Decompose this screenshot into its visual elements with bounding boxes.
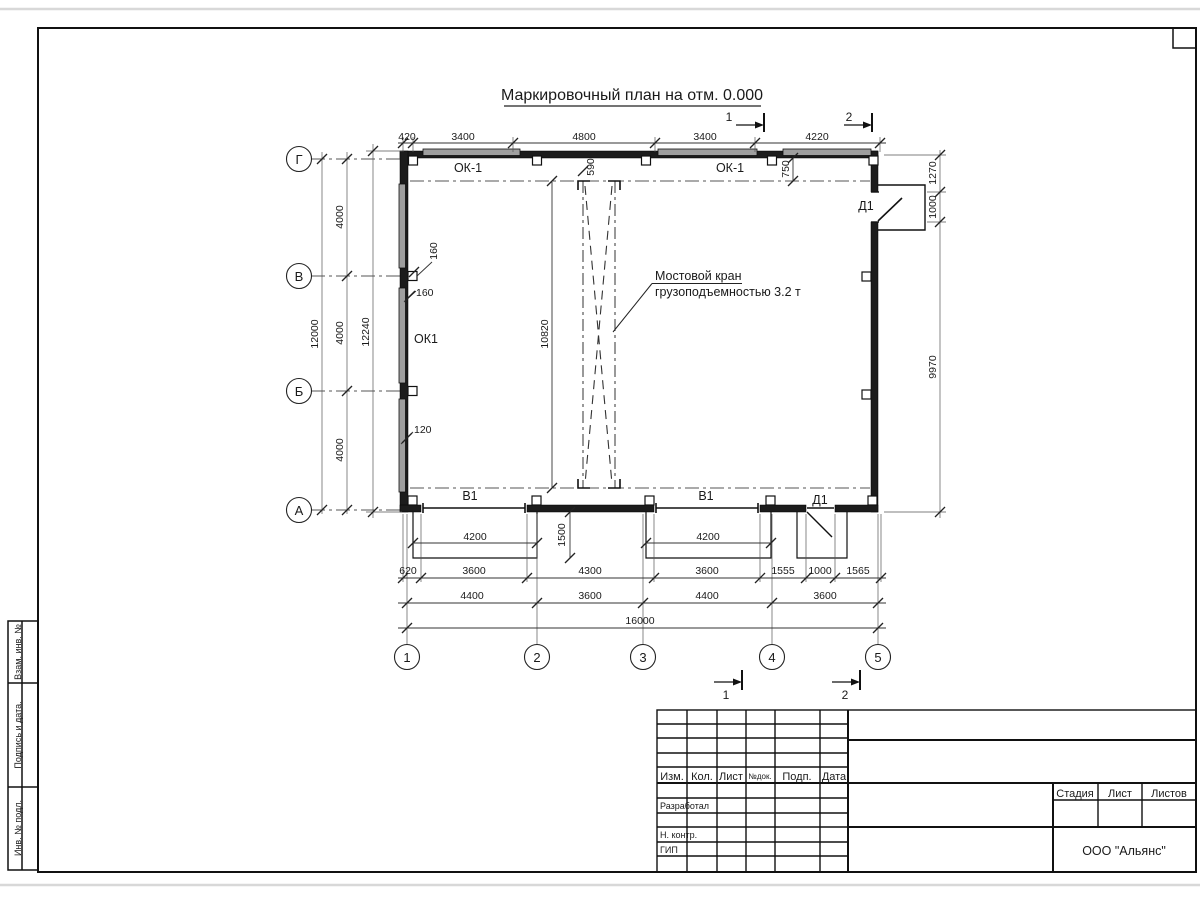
gate-left	[423, 503, 525, 513]
label-door-bottom: Д1	[812, 493, 827, 507]
dim-right-1270: 1270	[927, 161, 939, 185]
label-door-right: Д1	[858, 199, 873, 213]
dim-b2-4400a: 4400	[460, 590, 484, 602]
axis-label-4: 4	[768, 650, 775, 665]
dim-b1-620: 620	[399, 565, 417, 577]
openings	[413, 185, 925, 558]
dim-crane-590: 590	[585, 158, 597, 176]
side-strip-label-vzam: Взам. инв. №	[13, 624, 23, 680]
dim-left-4000a: 4000	[334, 205, 346, 229]
side-strip-label-podpis: Подпись и дата.	[13, 701, 23, 768]
tb-col-ndok: №док.	[748, 772, 771, 781]
axis-label-v: В	[295, 269, 304, 284]
dim-top-3400b: 3400	[693, 131, 717, 143]
axis-label-2: 2	[533, 650, 540, 665]
window-strips	[399, 149, 871, 492]
axis-marker-texts: Г В Б А 1 2 3 4 5	[295, 152, 882, 665]
dim-b1-1555: 1555	[771, 565, 795, 577]
crane-bridge	[578, 181, 620, 488]
dim-left-12240: 12240	[360, 317, 372, 346]
door-bottom	[807, 508, 834, 537]
wall-bottom-4	[835, 505, 878, 512]
label-window-left-wall: ОК1	[414, 332, 438, 346]
floor-plan-drawing: Взам. инв. № Подпись и дата. Инв. № подл…	[0, 0, 1200, 900]
title-block: Изм. Кол. Лист №док. Подп. Дата Разработ…	[657, 710, 1196, 872]
dim-b2-3600b: 3600	[813, 590, 837, 602]
window-left-3	[399, 399, 406, 492]
drawing-sheet: { "drawing": { "title": "Маркировочный п…	[0, 0, 1200, 900]
dim-total-16000: 16000	[625, 615, 654, 627]
dim-pilaster-120: 120	[414, 424, 432, 436]
corner-stamp-box	[1173, 28, 1196, 48]
axis-label-b: Б	[295, 384, 304, 399]
dim-b1-4300: 4300	[578, 565, 602, 577]
dim-left-4000c: 4000	[334, 438, 346, 462]
dim-left-4000b: 4000	[334, 321, 346, 345]
crane-note: Мостовой кран грузоподъемностью 3.2 т	[613, 269, 801, 332]
dim-top-4220: 4220	[805, 131, 829, 143]
axis-label-5: 5	[874, 650, 881, 665]
axis-label-1: 1	[403, 650, 410, 665]
plan-title: Маркировочный план на отм. 0.000	[501, 87, 763, 106]
section-marker-top-1: 1	[726, 110, 764, 132]
element-labels: ОК-1 ОК-1 ОК1 В1 В1 Д1 Д1	[414, 161, 874, 507]
window-left-1	[399, 184, 406, 268]
porch-bottom	[797, 512, 847, 558]
dim-crane-10820: 10820	[539, 319, 551, 348]
tb-col-list: Лист	[719, 771, 743, 783]
dim-ramp-1500: 1500	[556, 523, 568, 547]
section-markers: 1 2 1 2	[714, 110, 872, 702]
dim-crane-750: 750	[780, 160, 792, 178]
section-label-bottom-2: 2	[842, 688, 849, 702]
plan-title-text: Маркировочный план на отм. 0.000	[501, 87, 763, 104]
tb-col-data: Дата	[822, 771, 847, 783]
tb-row-gip: ГИП	[660, 845, 678, 855]
tb-col-izm: Изм.	[660, 771, 684, 783]
dim-b1-1565: 1565	[846, 565, 870, 577]
door-right-porch	[871, 185, 925, 230]
dim-b1-3600b: 3600	[695, 565, 719, 577]
dim-b2-3600a: 3600	[578, 590, 602, 602]
dim-top-3400a: 3400	[451, 131, 475, 143]
tb-col-podp: Подп.	[782, 771, 811, 783]
dimension-ticks	[317, 138, 945, 633]
dim-left-12000: 12000	[309, 319, 321, 348]
section-marker-top-2: 2	[844, 110, 872, 132]
dim-top-420: 420	[398, 131, 416, 143]
scan-edges	[0, 9, 1200, 885]
walls	[400, 151, 878, 512]
dim-top-4800: 4800	[572, 131, 596, 143]
tb-row-ncontrol: Н. контр.	[660, 830, 697, 840]
section-label-top-2: 2	[846, 110, 853, 124]
wall-right-lower	[871, 222, 878, 512]
window-top-1	[423, 149, 520, 156]
window-top-2	[658, 149, 757, 156]
label-gate-left: В1	[462, 489, 477, 503]
tb-sheet: Лист	[1108, 788, 1132, 800]
tb-company: ООО "Альянс"	[1082, 844, 1166, 858]
axis-label-a: А	[295, 503, 304, 518]
side-strip-label-inv: Инв. № подл.	[13, 800, 23, 856]
dim-right-9970: 9970	[927, 355, 939, 379]
tb-col-kol: Кол.	[691, 771, 713, 783]
axis-label-3: 3	[639, 650, 646, 665]
wall-bottom-2	[527, 505, 654, 512]
columns	[408, 156, 878, 505]
dim-ramp-4200b: 4200	[696, 531, 720, 543]
wall-bottom-3	[760, 505, 806, 512]
section-marker-bottom-2: 2	[832, 670, 860, 702]
wall-bottom-1	[400, 505, 421, 512]
tb-row-developed: Разработал	[660, 801, 709, 811]
tb-sheets: Листов	[1151, 788, 1187, 800]
section-label-bottom-1: 1	[723, 688, 730, 702]
crane-note-line1: Мостовой кран	[655, 269, 742, 283]
dimension-lines	[398, 143, 886, 628]
section-marker-bottom-1: 1	[714, 670, 742, 702]
dim-b2-4400b: 4400	[695, 590, 719, 602]
dim-ramp-4200a: 4200	[463, 531, 487, 543]
dim-b1-1000: 1000	[808, 565, 832, 577]
label-gate-right: В1	[698, 489, 713, 503]
dim-pilaster-160a: 160	[428, 242, 440, 260]
window-left-2	[399, 288, 406, 383]
tb-stage: Стадия	[1056, 788, 1094, 800]
dim-b1-3600a: 3600	[462, 565, 486, 577]
label-window-top-right: ОК-1	[716, 161, 744, 175]
section-label-top-1: 1	[726, 110, 733, 124]
crane-note-line2: грузоподъемностью 3.2 т	[655, 285, 801, 299]
label-window-top-left: ОК-1	[454, 161, 482, 175]
side-attribute-strip: Взам. инв. № Подпись и дата. Инв. № подл…	[8, 621, 38, 870]
dim-pilaster-160b: 160	[416, 287, 434, 299]
axis-lines	[311, 159, 870, 510]
axis-label-g: Г	[295, 152, 302, 167]
gate-right	[656, 503, 758, 513]
dim-right-1000: 1000	[927, 195, 939, 219]
